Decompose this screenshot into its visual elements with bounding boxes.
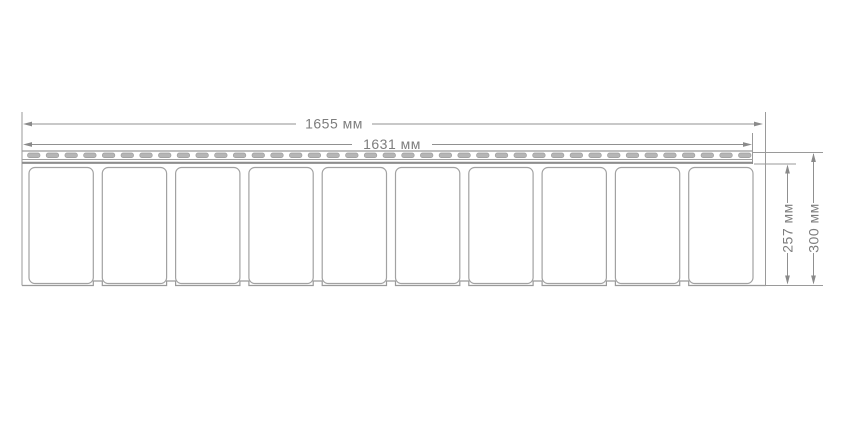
panel-lobe <box>322 168 386 284</box>
nail-slot <box>589 153 602 158</box>
panel-lobe <box>542 168 606 284</box>
panel-lobe <box>102 168 166 284</box>
nail-slot <box>720 153 733 158</box>
nail-slot <box>102 153 115 158</box>
panel-lobes <box>29 168 753 284</box>
panel-dimension-diagram: 1655 мм 1631 мм 257 мм 300 мм <box>0 0 850 425</box>
nail-slot <box>177 153 190 158</box>
arrow-right-icon <box>743 142 752 147</box>
arrow-left-icon <box>23 122 32 127</box>
nail-slot <box>364 153 377 158</box>
nail-slot <box>739 153 752 158</box>
nail-slot <box>514 153 527 158</box>
nail-slot <box>46 153 59 158</box>
nail-slot <box>402 153 415 158</box>
nail-slots <box>28 153 752 158</box>
arrow-left-icon <box>23 142 32 147</box>
nail-slot <box>289 153 302 158</box>
dimension-label-overall-height: 300 мм <box>806 203 822 253</box>
nail-slot <box>608 153 621 158</box>
panel-lobe <box>615 168 679 284</box>
nail-slot <box>121 153 134 158</box>
nail-slot <box>84 153 97 158</box>
panel-lobe <box>249 168 313 284</box>
nail-slot <box>28 153 41 158</box>
panel-lobe <box>396 168 460 284</box>
nail-slot <box>252 153 265 158</box>
nail-slot <box>158 153 171 158</box>
panel-lobe <box>689 168 753 284</box>
nail-slot <box>196 153 209 158</box>
nail-slot <box>533 153 546 158</box>
arrow-up-icon <box>785 165 790 174</box>
panel-lobe <box>29 168 93 284</box>
nail-slot <box>626 153 639 158</box>
nail-slot <box>383 153 396 158</box>
nail-slot <box>458 153 471 158</box>
nail-slot <box>327 153 340 158</box>
arrow-down-icon <box>785 276 790 285</box>
arrow-down-icon <box>811 276 816 285</box>
nail-slot <box>477 153 490 158</box>
nail-slot <box>570 153 583 158</box>
nail-hem-strip <box>22 151 753 163</box>
nail-slot <box>308 153 321 158</box>
dimension-label-face-length: 1631 мм <box>363 136 421 152</box>
nail-slot <box>346 153 359 158</box>
nail-slot <box>271 153 284 158</box>
panel-lobe <box>469 168 533 284</box>
nail-slot <box>701 153 714 158</box>
nail-slot <box>495 153 508 158</box>
arrow-up-icon <box>811 153 816 162</box>
nail-slot <box>664 153 677 158</box>
nail-slot <box>65 153 78 158</box>
dimension-label-overall-length: 1655 мм <box>305 116 363 132</box>
nail-slot <box>551 153 564 158</box>
nail-slot <box>439 153 452 158</box>
nail-slot <box>645 153 658 158</box>
panel-lobe <box>176 168 240 284</box>
dimension-face-height: 257 мм <box>780 165 796 285</box>
nail-slot <box>140 153 153 158</box>
dimension-overall-length: 1655 мм <box>23 116 763 132</box>
dimension-overall-height: 300 мм <box>806 153 822 285</box>
arrow-right-icon <box>754 122 763 127</box>
dimension-face-length: 1631 мм <box>23 136 752 152</box>
nail-slot <box>215 153 228 158</box>
nail-slot <box>682 153 695 158</box>
dimension-label-face-height: 257 мм <box>780 203 796 253</box>
nail-slot <box>420 153 433 158</box>
nail-slot <box>233 153 246 158</box>
